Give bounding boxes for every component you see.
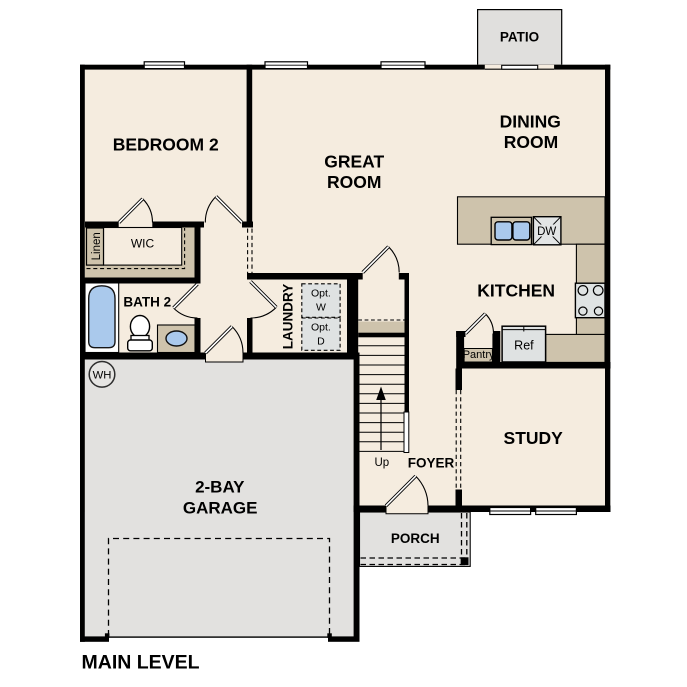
svg-text:BATH 2: BATH 2 [123,294,171,309]
svg-text:W: W [316,302,326,314]
svg-text:MAIN LEVEL: MAIN LEVEL [82,652,200,674]
svg-text:DW: DW [537,226,556,238]
svg-text:Pantry: Pantry [463,349,495,361]
svg-text:STUDY: STUDY [504,428,564,448]
svg-text:2-BAY: 2-BAY [195,478,245,497]
svg-text:FOYER: FOYER [408,455,455,470]
svg-text:BEDROOM 2: BEDROOM 2 [113,134,219,154]
svg-text:ROOM: ROOM [327,172,381,192]
svg-text:Linen: Linen [91,232,103,260]
svg-text:GARAGE: GARAGE [183,499,258,518]
svg-text:KITCHEN: KITCHEN [477,281,555,301]
svg-text:WIC: WIC [131,237,155,251]
svg-text:ROOM: ROOM [504,132,558,152]
svg-text:Opt.: Opt. [311,288,331,300]
svg-text:LAUNDRY: LAUNDRY [281,284,296,350]
svg-text:Ref: Ref [514,339,534,353]
svg-text:WH: WH [93,369,112,381]
svg-text:PATIO: PATIO [500,29,539,44]
svg-text:Up: Up [374,457,389,469]
svg-text:D: D [317,336,325,348]
svg-text:PORCH: PORCH [391,531,440,546]
svg-text:DINING: DINING [500,111,561,131]
svg-text:Opt.: Opt. [311,322,331,334]
svg-text:GREAT: GREAT [324,152,384,172]
